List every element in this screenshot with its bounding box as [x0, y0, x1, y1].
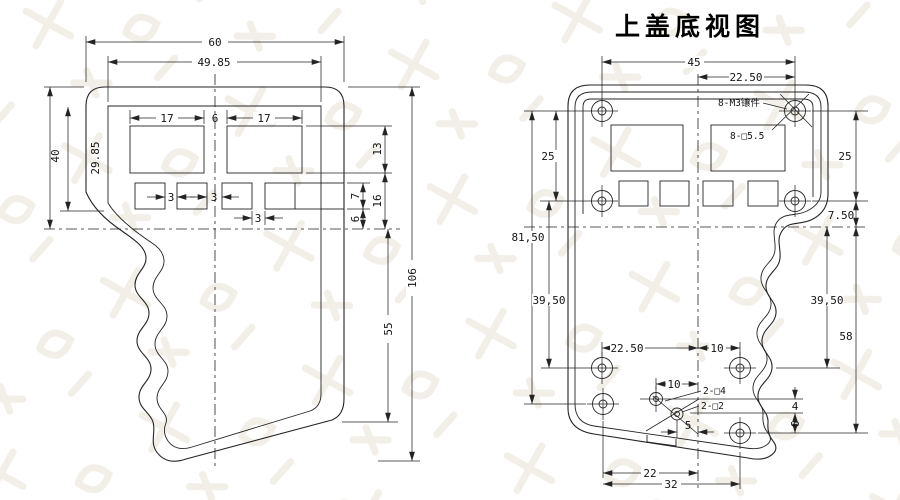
cad-drawing-page: 60 49.85 17 6 17 40 29.85 [0, 0, 900, 500]
dim-text-3950-right: 39,50 [810, 294, 843, 307]
dim-text-40: 40 [49, 149, 62, 162]
dim-text-25-right: 25 [838, 150, 851, 163]
dim-text-3c: 3 [255, 212, 262, 225]
dim-text-10-bottom: 10 [710, 342, 723, 355]
dim-text-22: 22 [643, 467, 656, 480]
dim-text-4985: 49.85 [197, 56, 230, 69]
dim-text-60: 60 [208, 36, 221, 49]
dim-text-45: 45 [687, 56, 700, 69]
dim-text-17-right: 17 [257, 112, 270, 125]
dim-text-2250-bottom: 22.50 [610, 342, 643, 355]
dim-text-58: 58 [839, 330, 852, 343]
dim-text-7: 7 [349, 193, 362, 200]
cad-drawing-svg: 60 49.85 17 6 17 40 29.85 [0, 0, 900, 500]
square2-note-text: 2-□2 [701, 401, 724, 412]
dim-text-2250-top: 22.50 [729, 71, 762, 84]
watermark-pattern [0, 0, 900, 500]
insert-note-text: 8-M3镶件 [718, 97, 760, 109]
dim-text-16: 16 [371, 194, 384, 207]
dim-text-32: 32 [664, 478, 677, 491]
dim-text-10-mid: 10 [667, 378, 680, 391]
boss-note-text: 8-□5.5 [730, 131, 764, 142]
dim-text-17-left: 17 [160, 112, 173, 125]
view-title: 上盖底视图 [615, 12, 765, 41]
dim-text-6: 6 [789, 421, 802, 428]
dim-text-3a: 3 [168, 191, 175, 204]
dim-text-25-left: 25 [541, 150, 554, 163]
dim-text-6-gap: 6 [212, 112, 219, 125]
square4-note-text: 2-□4 [703, 386, 726, 397]
dim-text-5: 5 [685, 419, 692, 432]
note-bosses: 8-□5.5 [730, 131, 764, 142]
dim-text-2985: 29.85 [89, 141, 102, 174]
dim-text-13: 13 [371, 142, 384, 155]
dim-text-3950-left: 39,50 [532, 294, 565, 307]
dim-text-6b: 6 [349, 216, 362, 223]
dim-text-8150: 81,50 [511, 231, 544, 244]
dim-text-106: 106 [406, 268, 419, 288]
dim-text-4: 4 [792, 400, 799, 413]
dim-text-55: 55 [382, 322, 395, 335]
dim-text-3b: 3 [211, 191, 218, 204]
dim-text-750: 7.50 [828, 209, 855, 222]
